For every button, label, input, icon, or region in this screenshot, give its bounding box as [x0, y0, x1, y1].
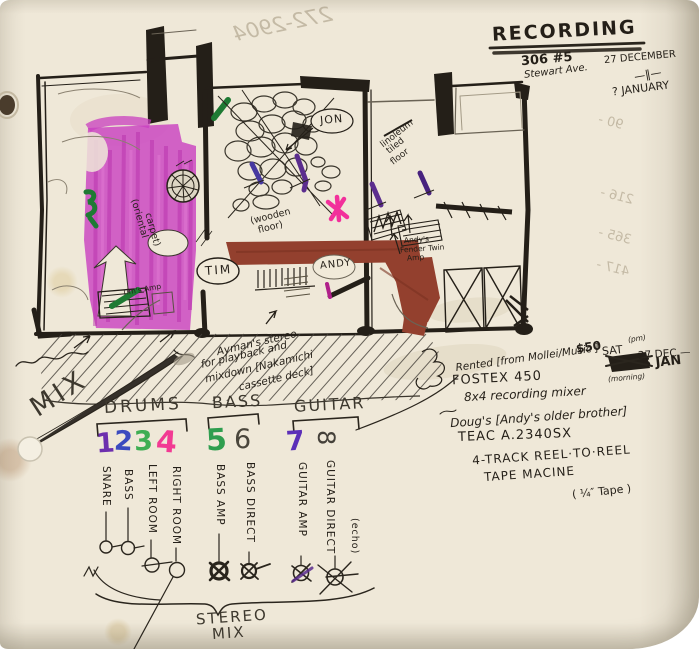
channel-3-label: LEFT ROOM	[147, 464, 158, 534]
jan5-note: 5 JAN	[641, 354, 682, 371]
channel-7-number: 7	[285, 427, 306, 455]
channel-7-label: GUITAR AMP	[297, 462, 308, 537]
channel-1-label: SNARE	[101, 466, 112, 507]
channel-8-label: GUITAR DIRECT	[325, 460, 336, 554]
teac-note: TEAC A.2340SX	[458, 427, 572, 444]
channel-3-number: 3	[133, 428, 153, 456]
mic-stand-lines	[218, 90, 334, 218]
channel-2-number: 2	[113, 428, 133, 456]
channel-6-label: BASS DIRECT	[245, 462, 256, 543]
label-tim: TIM	[205, 263, 233, 277]
group-guitar: GUITAR	[294, 395, 366, 415]
group-drums: DRUMS	[104, 396, 183, 417]
channel-4-number: 4	[155, 427, 178, 458]
paper-hole	[0, 95, 15, 115]
sat-note: SAT	[601, 344, 623, 357]
pink-x-mark	[328, 197, 347, 220]
channel-8-number: 8	[314, 430, 338, 445]
scanned-notebook-page: RECORDING 306 #5 Stewart Ave. 27 DECEMBE…	[0, 0, 699, 649]
channel-4-label: RIGHT ROOM	[171, 466, 182, 545]
stereo-mix-line2: MIX	[212, 625, 247, 642]
channel-8-sublabel: (echo)	[350, 518, 360, 554]
label-jon: JON	[320, 113, 344, 126]
channel-2-label: BASS	[123, 469, 134, 501]
group-bass: BASS	[212, 393, 263, 412]
label-andys-amp-3: Amp	[407, 253, 425, 262]
channel-5-number: 5	[205, 425, 227, 456]
channel-5-label: BASS AMP	[215, 464, 226, 526]
channel-6-number: 6	[234, 426, 252, 454]
